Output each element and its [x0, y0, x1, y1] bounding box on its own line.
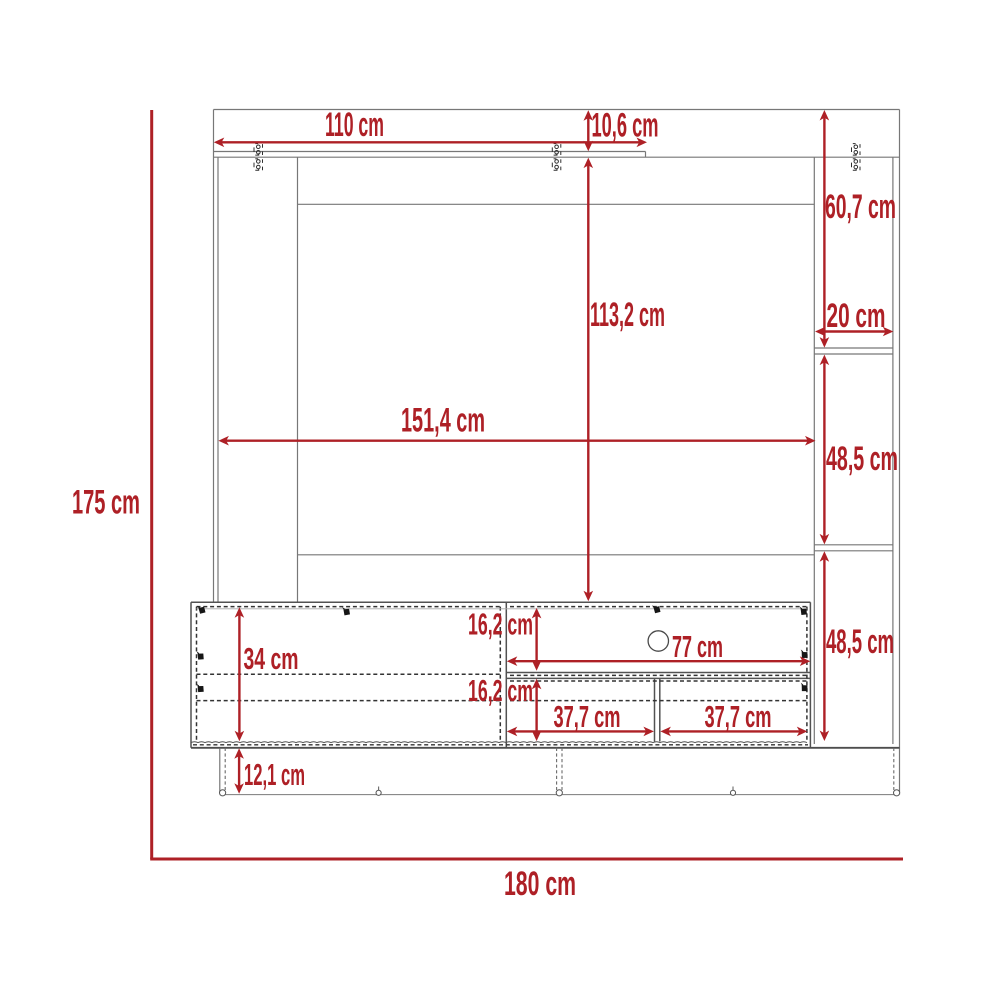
svg-text:60,7 cm: 60,7 cm	[825, 188, 896, 226]
svg-text:77 cm: 77 cm	[672, 629, 723, 664]
svg-text:180 cm: 180 cm	[504, 865, 576, 903]
svg-text:20 cm: 20 cm	[827, 297, 886, 335]
svg-text:37,7 cm: 37,7 cm	[554, 699, 621, 734]
svg-text:34 cm: 34 cm	[244, 641, 299, 676]
svg-text:110 cm: 110 cm	[325, 106, 384, 144]
svg-text:10,6 cm: 10,6 cm	[592, 106, 659, 144]
svg-text:16,2 cm: 16,2 cm	[468, 607, 533, 642]
svg-text:151,4 cm: 151,4 cm	[401, 402, 485, 440]
svg-text:48,5 cm: 48,5 cm	[826, 440, 898, 478]
svg-text:175 cm: 175 cm	[72, 483, 140, 521]
svg-text:16,2 cm: 16,2 cm	[468, 673, 533, 708]
svg-text:113,2 cm: 113,2 cm	[590, 296, 665, 334]
svg-text:48,5 cm: 48,5 cm	[826, 623, 894, 661]
svg-text:12,1 cm: 12,1 cm	[244, 757, 305, 792]
svg-text:37,7 cm: 37,7 cm	[705, 699, 772, 734]
